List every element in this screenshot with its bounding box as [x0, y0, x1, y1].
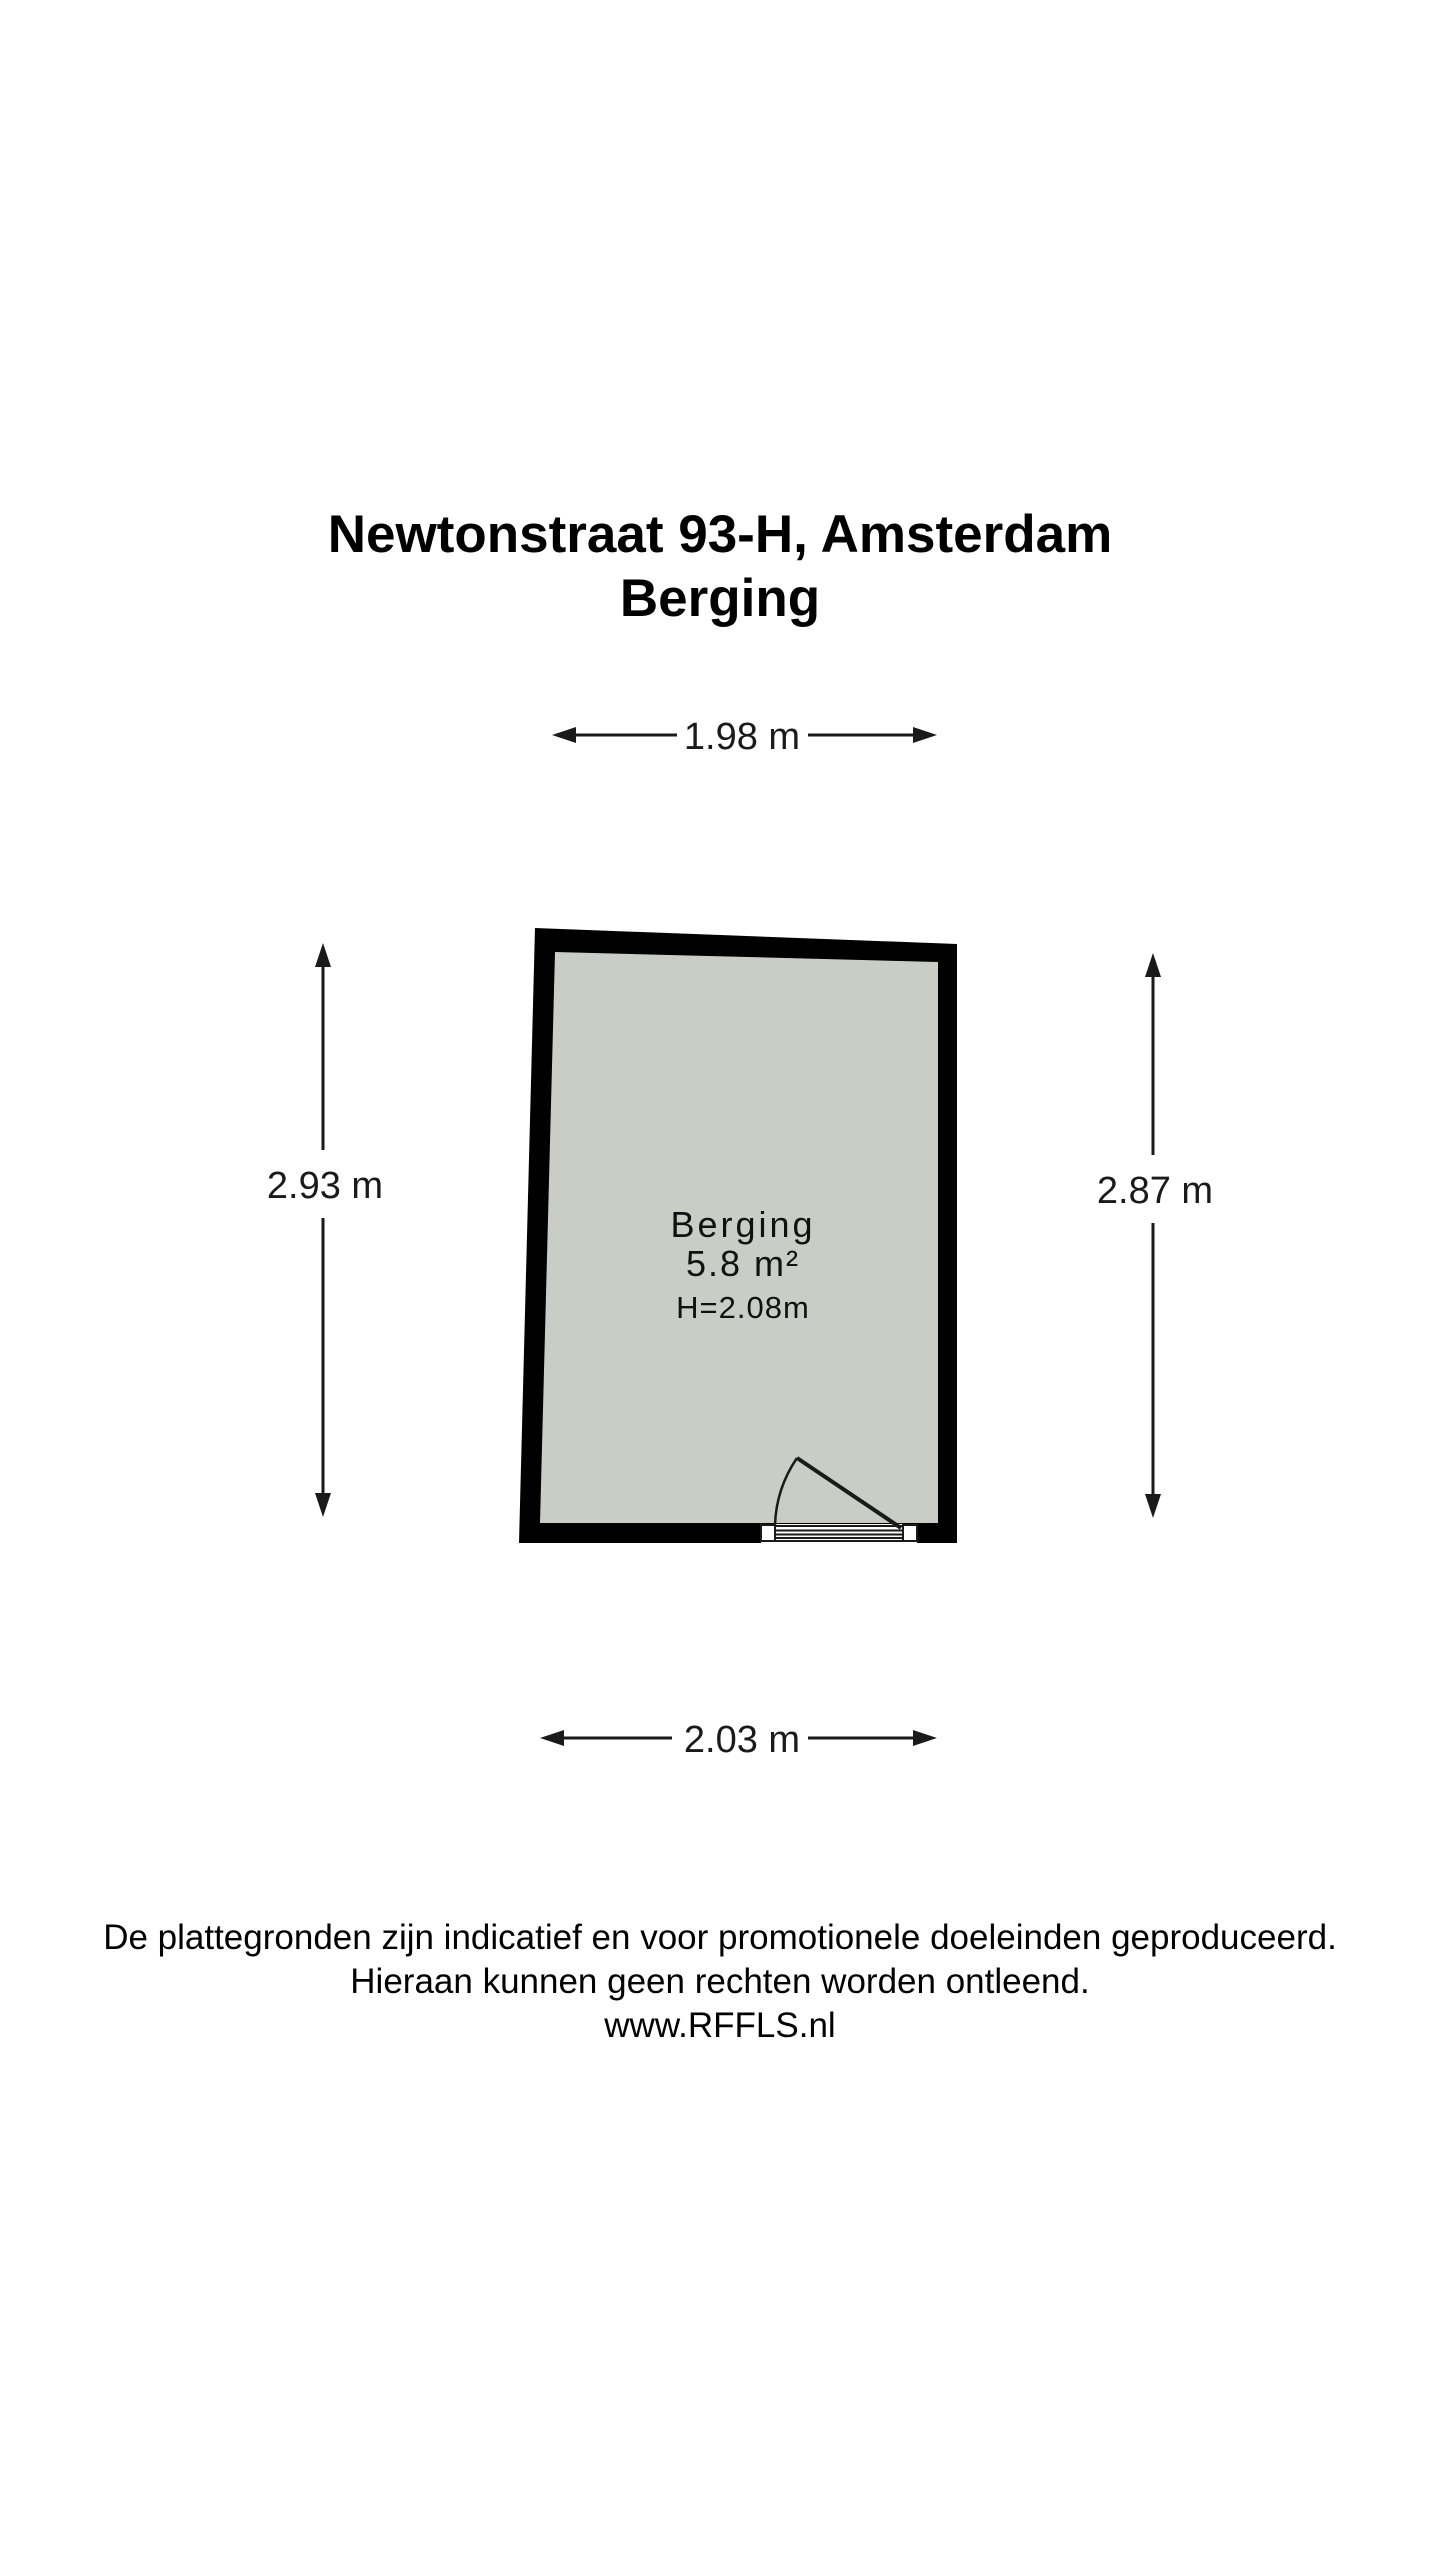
dimension-bottom: 2.03 m — [540, 1719, 937, 1761]
disclaimer-line2: Hieraan kunnen geen rechten worden ontle… — [0, 1960, 1440, 2004]
room-area-label: 5.8 m² — [686, 1243, 800, 1284]
dimension-right: 2.87 m — [1097, 953, 1213, 1518]
arrow-up-icon — [315, 943, 331, 967]
room-ceiling-height-label: H=2.08m — [676, 1290, 810, 1325]
arrow-down-icon — [1145, 1494, 1161, 1518]
arrow-right-icon — [913, 1730, 937, 1746]
dimension-left-label: 2.93 m — [267, 1165, 383, 1207]
dimension-left: 2.93 m — [267, 943, 383, 1517]
room-name-label: Berging — [670, 1204, 815, 1245]
disclaimer: De plattegronden zijn indicatief en voor… — [0, 1916, 1440, 2048]
disclaimer-website: www.RFFLS.nl — [0, 2004, 1440, 2048]
arrow-left-icon — [552, 727, 576, 743]
floorplan-page: Newtonstraat 93-H, Amsterdam Berging — [0, 0, 1440, 2560]
dimension-bottom-label: 2.03 m — [684, 1719, 800, 1761]
disclaimer-line1: De plattegronden zijn indicatief en voor… — [0, 1916, 1440, 1960]
dimension-top: 1.98 m — [552, 716, 937, 758]
door-jamb-right — [903, 1525, 917, 1541]
arrow-up-icon — [1145, 953, 1161, 977]
dimension-top-label: 1.98 m — [684, 716, 800, 758]
arrow-down-icon — [315, 1493, 331, 1517]
door-threshold — [775, 1526, 903, 1541]
floor-plan: 1.98 m 2.93 m 2.87 m 2.03 m — [0, 0, 1440, 2560]
door-jamb-left — [761, 1525, 775, 1541]
dimension-right-label: 2.87 m — [1097, 1170, 1213, 1212]
room-labels: Berging 5.8 m² H=2.08m — [670, 1204, 815, 1325]
arrow-left-icon — [540, 1730, 564, 1746]
arrow-right-icon — [913, 727, 937, 743]
